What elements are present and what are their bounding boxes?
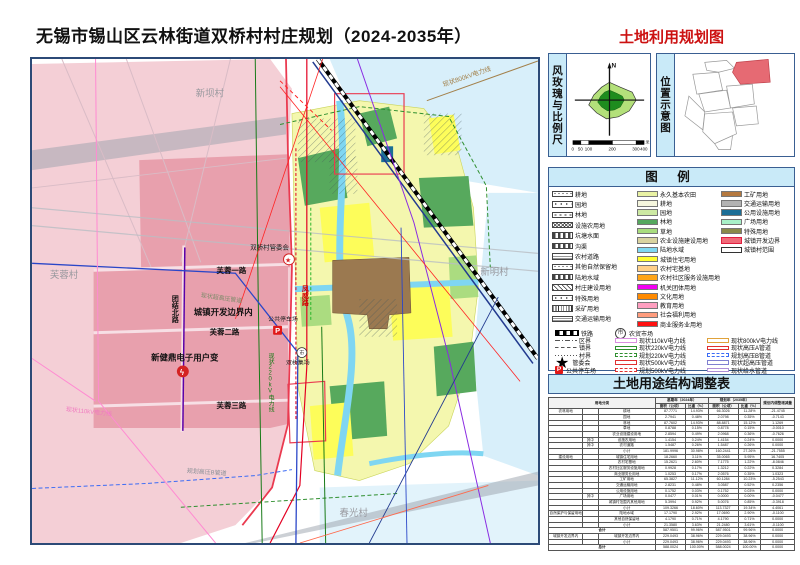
legend-item: 林地 <box>552 211 587 219</box>
legend-color-swatch <box>637 312 658 319</box>
legend-color-swatch <box>637 219 658 226</box>
legend-item-label: 草地 <box>660 227 672 236</box>
map-sheet-title: 土地利用规划图 <box>548 26 795 47</box>
legend-item: 文化用地 <box>637 292 684 300</box>
legend-color-swatch <box>637 265 658 272</box>
committee-icon-glyph: ★ <box>285 256 291 264</box>
legend-color-swatch <box>637 293 658 300</box>
legend-pattern-swatch <box>552 222 573 229</box>
legend-pattern-swatch <box>552 316 573 323</box>
legend-item: 采矿用地 <box>552 304 599 312</box>
map-label-village: 新明村 <box>480 266 509 277</box>
legend-item-label: 耕地 <box>575 190 587 199</box>
legend-item-label: 设施农用地 <box>575 221 605 230</box>
legend-panel: 图 例 耕地园地林地设施农用地坑塘水面沟渠农村道路其他自然保留地陆地水域村庄建设… <box>548 167 795 371</box>
legend-item: 耕地 <box>552 190 587 198</box>
hatched-overlay <box>359 299 397 337</box>
legend-pattern-swatch <box>552 253 573 260</box>
location-panel: 位置示意图 <box>656 53 795 157</box>
legend-item-label: 林地 <box>575 210 587 219</box>
grass-patch <box>449 255 479 299</box>
map-label-committee: 双桥村管委会 <box>250 242 289 251</box>
legend-item-label: 城镇村范围 <box>744 245 774 254</box>
legend-color-swatch <box>637 237 658 244</box>
legend-item-label: 社会福利用地 <box>660 310 696 319</box>
legend-item: 社会福利用地 <box>637 311 696 319</box>
legend-item-label: 陆地水域 <box>660 245 684 254</box>
table-cell: 588.0024 <box>708 545 738 551</box>
table-cell: 总计 <box>549 545 656 551</box>
legend-item-label: 沟渠 <box>575 242 587 251</box>
legend-item-label: 城镇开发边界 <box>744 236 780 245</box>
scale-tick: 0 <box>571 146 574 151</box>
legend-item: 耕地 <box>637 199 672 207</box>
windrose-panel: 风玫瑰与比例尺 N 0 50 100 200 300 <box>548 53 651 157</box>
powerline-symbol <box>707 368 729 373</box>
map-label-transformer: 新健鼎电子用户变 <box>151 353 219 363</box>
powerline-symbol <box>707 346 729 351</box>
legend-item-label: 交通运输用地 <box>744 199 780 208</box>
legend-color-swatch <box>721 209 742 216</box>
legend-pattern-swatch <box>552 212 573 219</box>
legend-item: 特殊用地 <box>721 227 768 235</box>
legend-item-label: 特殊用地 <box>744 227 768 236</box>
legend-color-swatch <box>721 228 742 235</box>
table-header-area: 面积（公顷） <box>708 403 738 409</box>
legend-color-swatch <box>637 209 658 216</box>
legend-item: 商业服务业用地 <box>637 320 702 328</box>
legend-item-label: 农业设施建设用地 <box>660 236 708 245</box>
table-cell: 100.00% <box>686 545 709 551</box>
land-use-adjustment-table: 用地分类 基期年（2024年） 规划年（2035年） 规划内调整增减量 面积（公… <box>548 397 795 551</box>
powerline-symbol <box>707 360 729 365</box>
legend-item: 城镇住宅用地 <box>637 255 696 263</box>
scale-tick: 200 <box>609 146 617 151</box>
legend-item: 沟渠 <box>552 242 587 250</box>
legend-symbol-item: 现状给水管道 <box>707 366 767 374</box>
table-header-class: 用地分类 <box>549 398 656 409</box>
legend-item: 陆地水域 <box>552 273 599 281</box>
forest-patch <box>419 176 474 228</box>
legend-item: 公用设施用地 <box>721 209 780 217</box>
legend-pattern-swatch <box>552 284 573 291</box>
market-icon-glyph: 市 <box>299 350 304 357</box>
legend-item-label: 工矿用地 <box>744 190 768 199</box>
legend-item-label: 交通运输用地 <box>575 314 611 323</box>
table-cell: 自然保护与保留用地 <box>549 511 583 517</box>
legend-item: 陆地水域 <box>637 246 684 254</box>
legend-item: 农村宅基地 <box>637 264 690 272</box>
hatched-overlay <box>330 156 358 194</box>
table-header-adjust: 规划内调整增减量 <box>761 398 795 409</box>
legend-item-label: 教育用地 <box>660 301 684 310</box>
legend-item-label: 其他自然保留地 <box>575 262 617 271</box>
legend-color-swatch <box>637 284 658 291</box>
legend-pattern-swatch <box>552 274 573 281</box>
legend-pattern-swatch <box>552 295 573 302</box>
legend-item-label: 永久基本农田 <box>660 190 696 199</box>
legend-item: 村庄建设用地 <box>552 284 611 292</box>
legend-item: 农村道路 <box>552 252 599 260</box>
pmark-icon: P <box>555 366 563 374</box>
table-cell: 0.0000 <box>761 545 795 551</box>
land-use-map: 新坝村 芙蓉村 新明村 春光村 芙蓉一路 芙蓉二路 芙蓉三路 团结北路 凤威路 … <box>32 59 538 543</box>
powerline-symbol <box>615 353 637 358</box>
legend-color-swatch <box>721 200 742 207</box>
legend-item-label: 园地 <box>575 200 587 209</box>
legend-item-label: 林地 <box>660 217 672 226</box>
legend-color-swatch <box>637 247 658 254</box>
powerline-symbol <box>707 338 729 343</box>
legend-item: 特殊用地 <box>552 294 599 302</box>
windrose-panel-label: 风玫瑰与比例尺 <box>549 54 567 156</box>
legend-item: 农村社区服务设施用地 <box>637 274 720 282</box>
legend-color-swatch <box>721 247 742 254</box>
legend-item-label: 城镇住宅用地 <box>660 255 696 264</box>
north-label: N <box>611 62 616 69</box>
location-inset-map <box>675 54 794 155</box>
windrose-chart: N 0 50 100 200 300 400 米 <box>567 54 650 155</box>
legend-color-swatch <box>637 321 658 328</box>
legend-item-label: 采矿用地 <box>575 304 599 313</box>
legend-item-label: 农村社区服务设施用地 <box>660 273 720 282</box>
map-label-road: 芙蓉二路 <box>210 327 240 337</box>
legend-color-swatch <box>637 302 658 309</box>
powerline-symbol <box>615 346 637 351</box>
legend-color-swatch <box>637 200 658 207</box>
legend-item-label: 坑塘水面 <box>575 231 599 240</box>
legend-item-label: 公用设施用地 <box>744 208 780 217</box>
legend-item: 交通运输用地 <box>552 315 611 323</box>
scale-tick: 400 <box>640 146 648 151</box>
legend-color-swatch <box>637 256 658 263</box>
scale-unit: 米 <box>646 140 650 145</box>
map-label-road: 芙蓉三路 <box>217 400 247 410</box>
legend-item: 永久基本农田 <box>637 190 696 198</box>
highlighted-district <box>733 59 771 84</box>
legend-color-swatch <box>637 274 658 281</box>
legend-symbol-item: P公共停车场 <box>555 366 596 374</box>
legend-color-swatch <box>637 191 658 198</box>
map-label-parking: 公共停车场 <box>268 315 298 323</box>
map-canvas: 新坝村 芙蓉村 新明村 春光村 芙蓉一路 芙蓉二路 芙蓉三路 团结北路 凤威路 … <box>30 57 540 545</box>
legend-item-label: 机关团体用地 <box>660 283 696 292</box>
legend-color-swatch <box>637 228 658 235</box>
legend-item-label: 商业服务业用地 <box>660 320 702 329</box>
legend-item-label: 文化用地 <box>660 292 684 301</box>
legend-item-label: 村庄建设用地 <box>575 283 611 292</box>
legend-pattern-swatch <box>552 191 573 198</box>
table-header-pct: 比重（%） <box>738 403 761 409</box>
powerline-symbol <box>615 360 637 365</box>
legend-item: 广场用地 <box>721 218 768 226</box>
legend-item: 农业设施建设用地 <box>637 237 708 245</box>
legend-pattern-swatch <box>552 305 573 312</box>
scale-tick: 50 <box>578 146 583 151</box>
legend-color-swatch <box>721 237 742 244</box>
legend-item-label: 陆地水域 <box>575 273 599 282</box>
legend-item: 工矿用地 <box>721 190 768 198</box>
legend-item: 城镇村范围 <box>721 246 774 254</box>
table-cell: 城镇开发边界内 <box>549 534 583 540</box>
residential-patch <box>320 203 375 263</box>
table-cell: 100.00% <box>738 545 761 551</box>
railway-symbol <box>555 330 579 336</box>
legend-item-label: 广场用地 <box>744 217 768 226</box>
legend-item: 林地 <box>637 218 672 226</box>
legend-item: 城镇开发边界 <box>721 237 780 245</box>
legend-item: 机关团体用地 <box>637 283 696 291</box>
table-header-pct: 比重（%） <box>686 403 709 409</box>
map-label-village: 新坝村 <box>196 88 225 99</box>
legend-item-label: 特殊用地 <box>575 294 599 303</box>
development-core <box>139 154 290 272</box>
table-row: 总计588.0024100.00%588.0024100.00%0.0000 <box>549 545 795 551</box>
legend-item: 其他自然保留地 <box>552 263 617 271</box>
legend-item: 教育用地 <box>637 302 684 310</box>
legend-pattern-swatch <box>552 232 573 239</box>
planning-map-page: 无锡市锡山区云林街道双桥村村庄规划（2024-2035年） <box>0 0 800 565</box>
legend-item-label: 耕地 <box>660 199 672 208</box>
legend-color-swatch <box>721 219 742 226</box>
legend-color-swatch <box>721 191 742 198</box>
map-label-village: 春光村 <box>340 507 369 518</box>
table-cell: 588.0024 <box>655 545 685 551</box>
scale-tick: 300 <box>632 146 640 151</box>
legend-item: 坑塘水面 <box>552 232 599 240</box>
map-label-market: 双桥集场 <box>286 358 310 366</box>
map-label-road: 芙蓉一路 <box>217 265 247 275</box>
map-label-note: 城镇开发边界内 <box>194 307 253 317</box>
legend-item: 设施农用地 <box>552 221 605 229</box>
legend-pattern-swatch <box>552 201 573 208</box>
adjust-table-title: 土地用途结构调整表 <box>548 374 795 394</box>
boundary-line-symbol <box>555 347 577 348</box>
legend-item-label: 园地 <box>660 208 672 217</box>
map-label-village: 芙蓉村 <box>50 269 79 280</box>
table-header-area: 面积（公顷） <box>655 403 685 409</box>
legend-item-label: 农村宅基地 <box>660 264 690 273</box>
legend-body: 耕地园地林地设施农用地坑塘水面沟渠农村道路其他自然保留地陆地水域村庄建设用地特殊… <box>549 187 794 370</box>
page-title: 无锡市锡山区云林街道双桥村村庄规划（2024-2035年） <box>36 22 472 47</box>
hatched-overlay <box>424 114 462 156</box>
legend-item: 交通运输用地 <box>721 199 780 207</box>
map-label-line: 现状220kV电力线 <box>267 353 274 413</box>
legend-pattern-swatch <box>552 264 573 271</box>
legend-item-label: 农村道路 <box>575 252 599 261</box>
powerline-symbol <box>707 353 729 358</box>
parking-icon-glyph: P <box>275 326 280 335</box>
powerline-symbol <box>615 368 637 373</box>
legend-symbol-item: 规划500kV电力线 <box>615 366 686 374</box>
legend-pattern-swatch <box>552 243 573 250</box>
legend-item: 园地 <box>637 209 672 217</box>
legend-title: 图 例 <box>549 168 794 187</box>
scale-tick: 100 <box>585 146 593 151</box>
location-panel-label: 位置示意图 <box>657 54 675 156</box>
scale-bar <box>573 141 644 145</box>
legend-item: 草地 <box>637 227 672 235</box>
boundary-line-symbol <box>555 340 577 341</box>
water-area <box>473 193 537 476</box>
legend-item: 园地 <box>552 200 587 208</box>
powerline-symbol <box>615 338 637 343</box>
forest-patch <box>434 342 477 397</box>
